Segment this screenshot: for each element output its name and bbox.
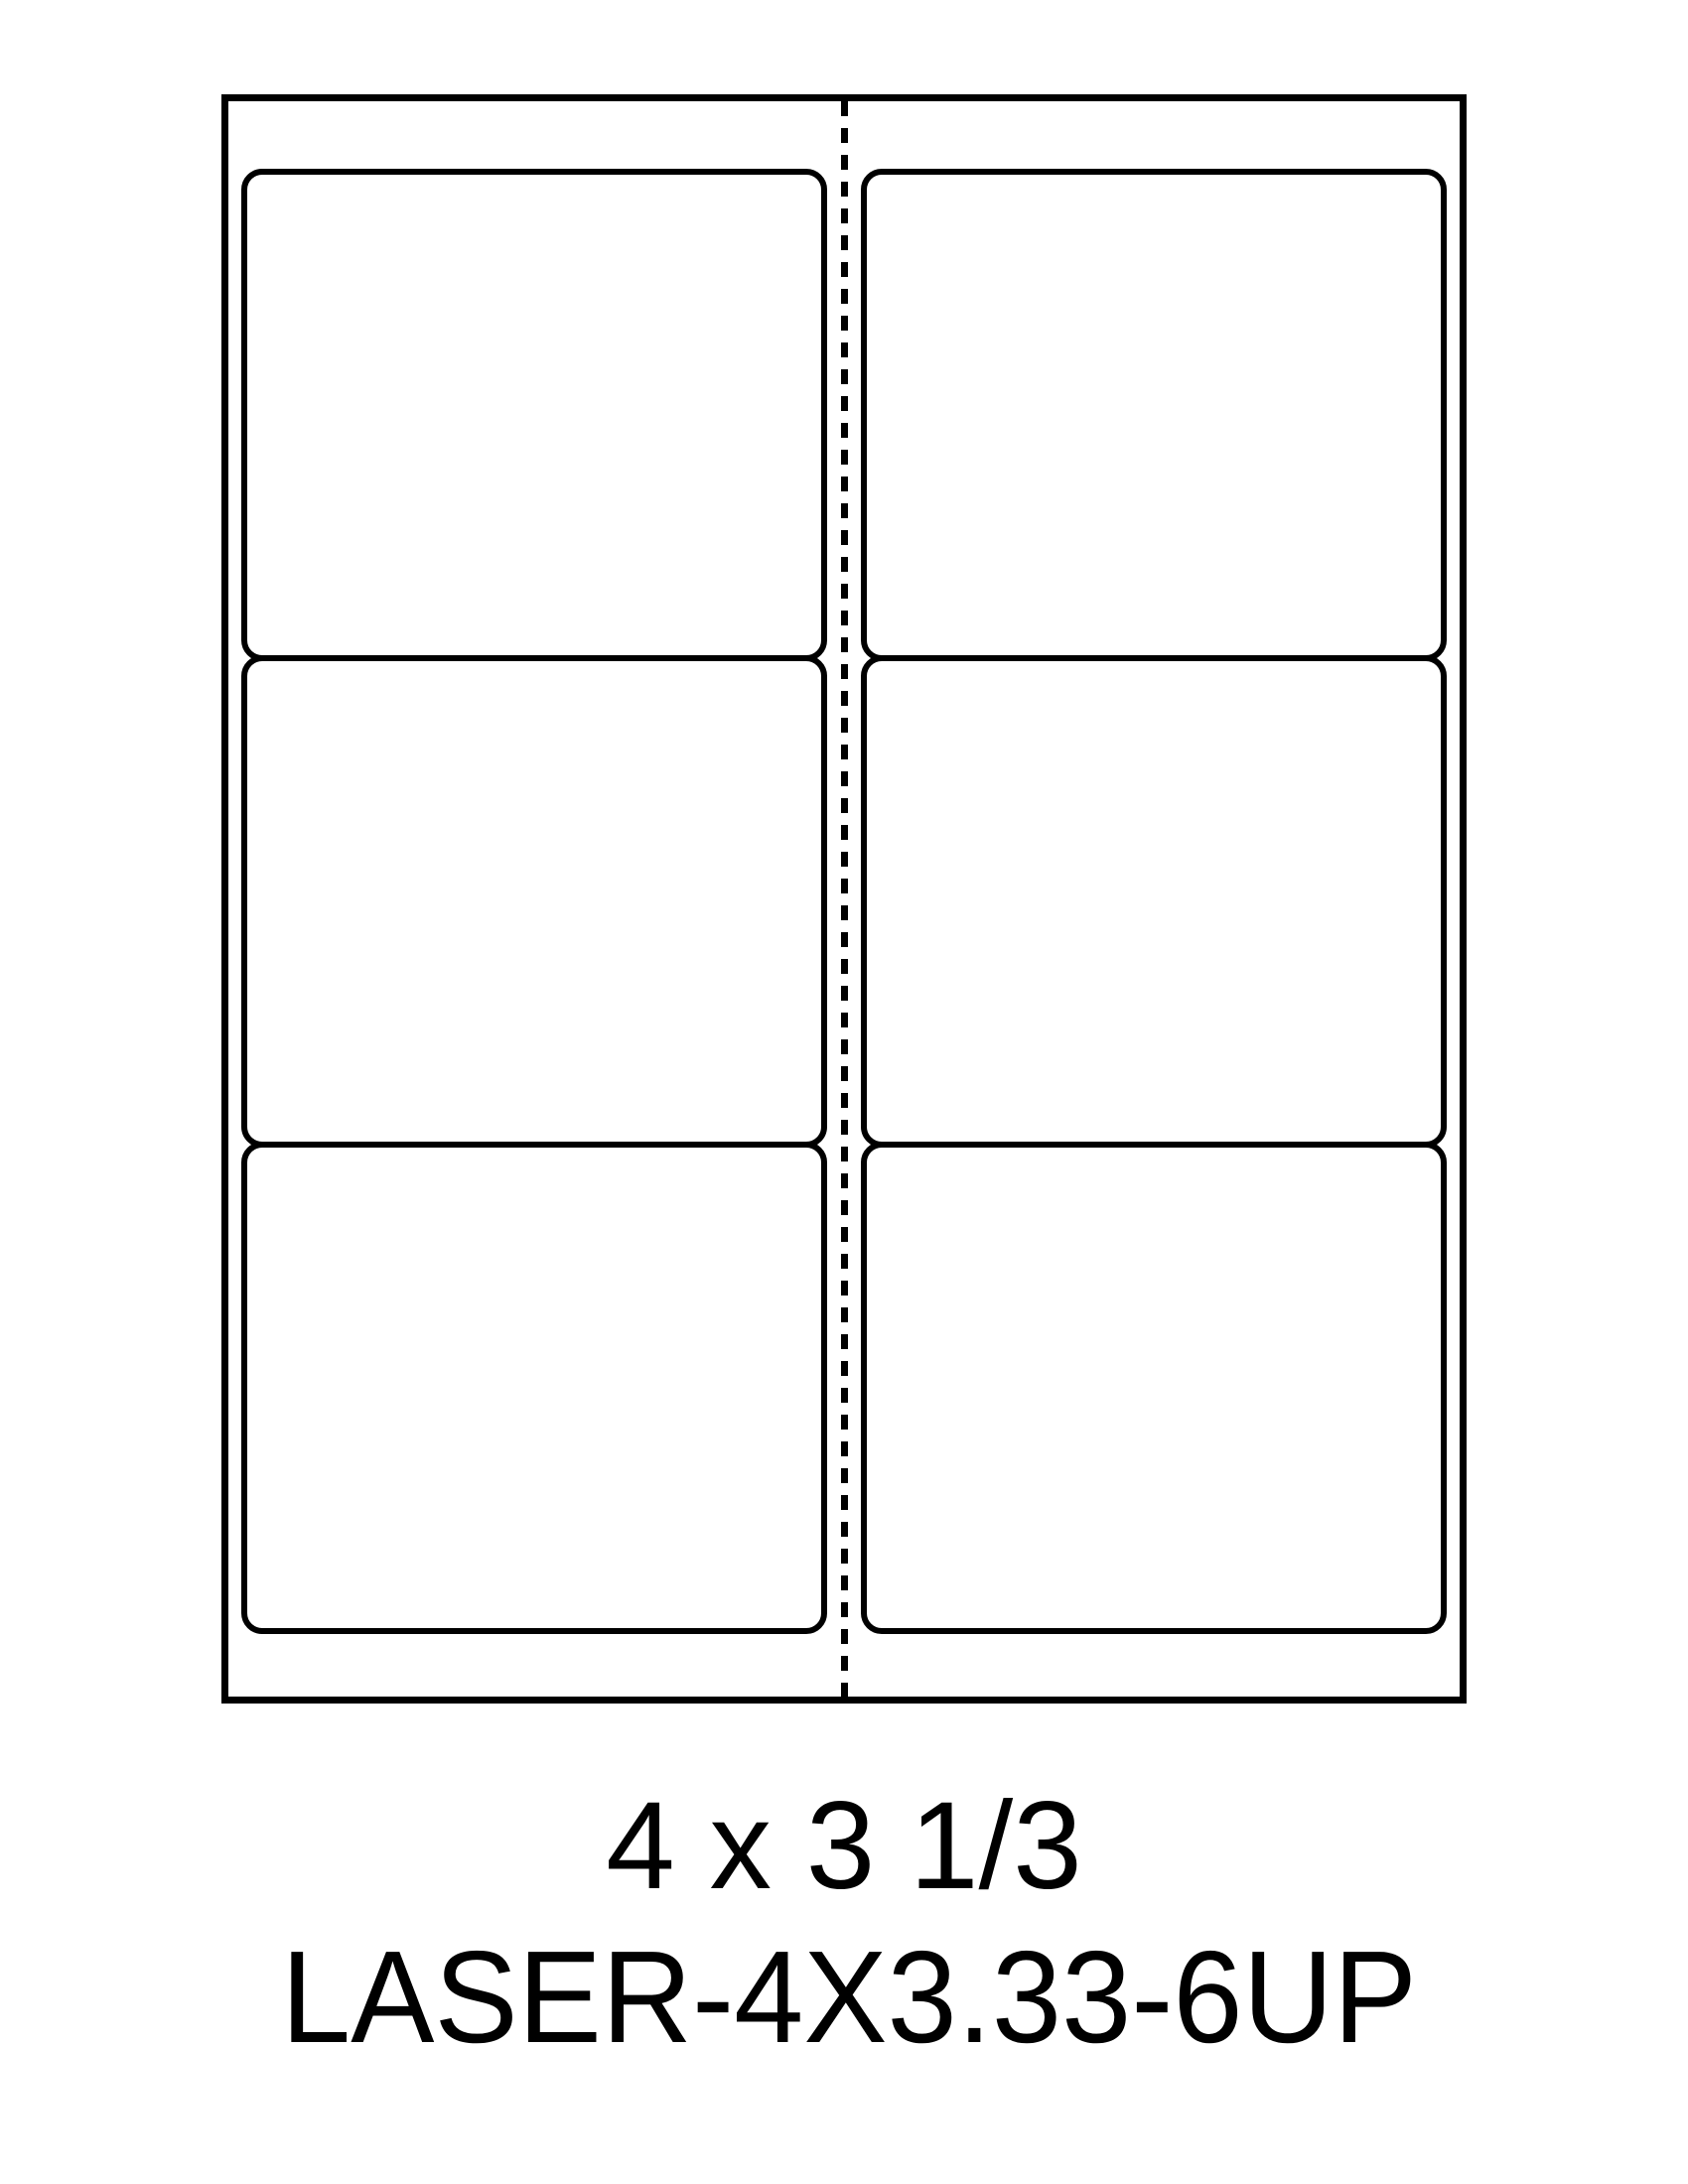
label-cell-r1c1 xyxy=(244,172,824,658)
label-template-preview: 4 x 3 1/3 LASER-4X3.33-6UP xyxy=(0,0,1688,2184)
label-cell-r3c2 xyxy=(864,1145,1444,1631)
label-cells xyxy=(244,172,1444,1631)
label-cell-r1c2 xyxy=(864,172,1444,658)
caption-template-name: LASER-4X3.33-6UP xyxy=(281,1924,1417,2070)
label-cell-r3c1 xyxy=(244,1145,824,1631)
caption-label-size: 4 x 3 1/3 xyxy=(606,1777,1082,1915)
label-cell-r2c1 xyxy=(244,658,824,1145)
label-sheet-diagram: 4 x 3 1/3 LASER-4X3.33-6UP xyxy=(0,0,1688,2184)
label-cell-r2c2 xyxy=(864,658,1444,1145)
